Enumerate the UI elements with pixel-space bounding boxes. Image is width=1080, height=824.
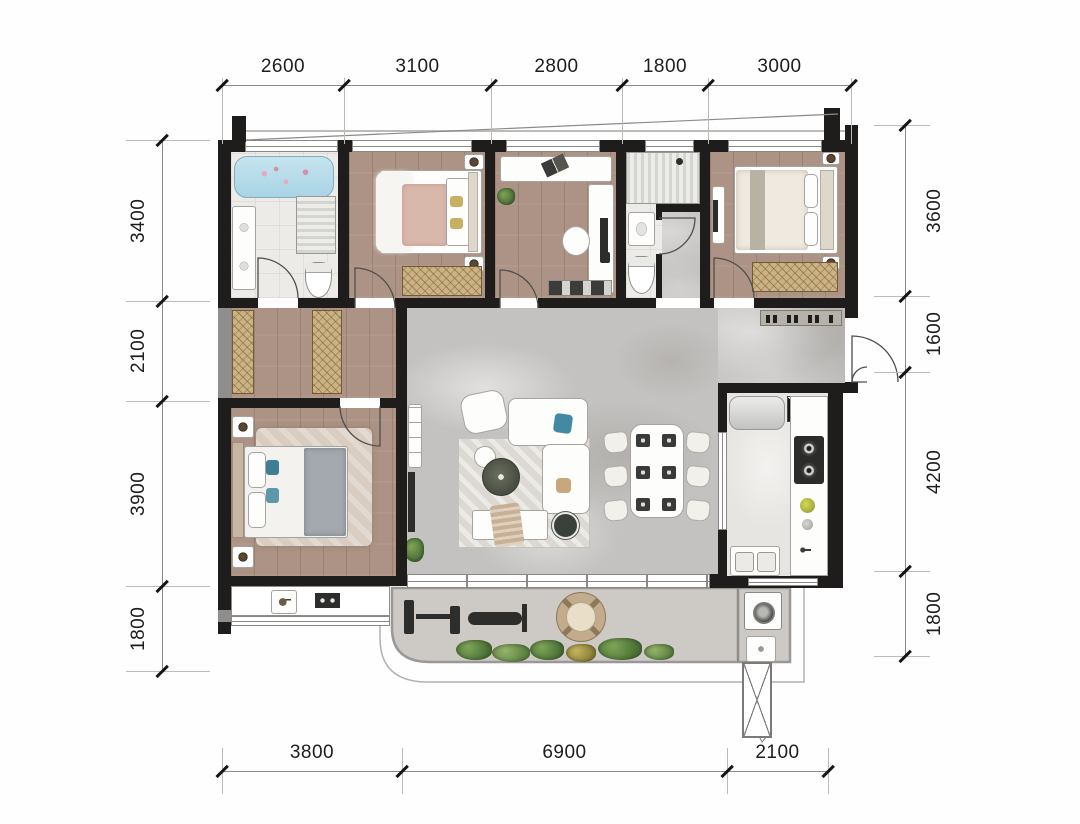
nightstand [232, 416, 254, 438]
wall-segment [845, 125, 858, 318]
bookshelf [408, 404, 422, 468]
tan-cushion [556, 478, 571, 493]
extension-line [491, 78, 492, 144]
toilet-tank [629, 257, 654, 267]
duvet-pink [402, 184, 448, 246]
dimension-label: 1800 [922, 571, 948, 656]
wall-segment [718, 530, 727, 576]
bowl [802, 519, 813, 530]
kitchen-glass-door [718, 432, 727, 530]
window [352, 140, 472, 152]
pillow [804, 174, 818, 208]
bed-runner [750, 170, 765, 250]
dimension-label: 1600 [922, 296, 948, 372]
refrigerator [729, 396, 785, 430]
bed-sheet [446, 178, 470, 246]
wall-segment [338, 152, 349, 298]
gold-pillow [450, 196, 463, 207]
wall-segment [218, 622, 231, 634]
wall-segment [700, 152, 710, 298]
faucet [798, 544, 814, 556]
wall-segment [754, 298, 845, 308]
pillow [248, 492, 266, 528]
wall-segment [218, 140, 231, 298]
place-setting [636, 466, 650, 479]
bench-rack [522, 604, 527, 632]
wall-segment [231, 398, 340, 408]
shower-area [296, 196, 336, 254]
planter-shrub [492, 644, 530, 662]
place-setting [662, 434, 676, 447]
wall-segment [656, 204, 704, 212]
wall-segment [616, 152, 626, 298]
desk-chair [562, 226, 590, 256]
dining-chair [685, 465, 711, 488]
gold-pillow [450, 218, 463, 229]
headboard [232, 442, 244, 538]
wardrobe [402, 266, 482, 296]
window [728, 140, 822, 152]
planter-shrub [566, 644, 596, 662]
wall-segment [218, 298, 231, 398]
door-arc-entry-main [852, 336, 898, 382]
wall-segment [298, 298, 355, 308]
dumbbell-rack [404, 600, 414, 634]
dimension-label: 2100 [727, 742, 828, 764]
extension-line [344, 78, 345, 144]
nightstand [232, 546, 254, 568]
sink-cabinet [730, 546, 780, 576]
window [245, 140, 338, 152]
nightstand [822, 152, 840, 165]
blanket [489, 502, 525, 548]
door-arc-entry-leaf [852, 367, 867, 382]
wardrobe [312, 310, 342, 394]
exercise-bench [468, 612, 522, 625]
bathroom-2-lobby [662, 204, 700, 298]
extension-line [222, 78, 223, 144]
dimension-line-right [905, 125, 906, 656]
wall-segment [700, 298, 714, 308]
gas-stove [794, 436, 824, 484]
dimension-label: 6900 [402, 742, 727, 764]
wall-segment [656, 212, 662, 220]
tv-screen [713, 200, 718, 232]
weight-plates [450, 606, 460, 634]
dimension-label: 3800 [222, 742, 402, 764]
extension-line [126, 671, 210, 672]
bathroom-vanity [232, 206, 256, 290]
planter-shrub [644, 644, 674, 660]
place-setting [662, 498, 676, 511]
teal-cushion [553, 413, 573, 434]
dimension-label: 1800 [622, 56, 708, 78]
shower-area [626, 152, 700, 204]
decor-tray [315, 593, 340, 608]
dimension-line-top [222, 85, 851, 86]
coffee-table [482, 458, 520, 496]
pillow [804, 212, 818, 246]
wall-segment [218, 298, 258, 308]
nightstand [464, 154, 484, 170]
teal-cushion [266, 488, 279, 503]
window [506, 140, 600, 152]
potted-plant [404, 538, 424, 562]
place-setting [636, 434, 650, 447]
toilet-tank [306, 263, 331, 273]
sink-basin [757, 552, 776, 572]
parapet-block [824, 108, 840, 140]
shower-head [676, 158, 683, 165]
washing-machine [744, 592, 782, 630]
wall-segment [218, 576, 407, 586]
wardrobe [232, 310, 254, 394]
gray-throw [304, 448, 346, 536]
headboard [468, 172, 478, 252]
wall-segment [396, 308, 407, 586]
extension-line [708, 78, 709, 144]
wall-segment [718, 393, 727, 432]
dimension-label: 3100 [344, 56, 491, 78]
washer-drum [753, 602, 775, 624]
place-setting [636, 498, 650, 511]
wall-segment [472, 140, 506, 152]
sofa [508, 398, 588, 446]
dimension-line-left [162, 140, 163, 671]
pouf [552, 512, 579, 539]
window [748, 578, 818, 586]
duvet [736, 170, 808, 250]
fruit-bowl [800, 498, 815, 513]
dimension-label: 3000 [708, 56, 851, 78]
dimension-label: 3600 [922, 125, 948, 296]
place-setting [662, 466, 676, 479]
dimension-label: 2100 [126, 301, 152, 401]
shoes [766, 315, 836, 323]
wall-segment [485, 152, 495, 298]
pipe-shaft [742, 662, 772, 738]
extension-line [622, 78, 623, 144]
teal-cushion [266, 460, 279, 475]
wardrobe [752, 262, 838, 292]
dimension-label: 3900 [126, 401, 152, 586]
balcony-sliding-door [407, 574, 710, 588]
hanging-chair-cushion [566, 602, 596, 632]
dining-chair [685, 431, 711, 454]
floor-plan: 2600 3100 2800 1800 3000 3800 6900 2100 … [0, 0, 1080, 824]
potted-plant [497, 188, 515, 205]
wall-segment [395, 298, 500, 308]
desk-item [600, 252, 610, 263]
planter-shrub [456, 640, 492, 660]
bay-window-glazing [231, 616, 390, 626]
window [645, 140, 694, 152]
wall-segment [710, 574, 718, 588]
planter-shrub [598, 638, 642, 660]
wall-segment [694, 140, 728, 152]
eave-diagonal-line [246, 114, 838, 140]
bathtub [234, 156, 334, 198]
dimension-label: 1800 [126, 586, 152, 671]
bay-window-cabinet [231, 586, 390, 616]
dimension-label: 2800 [491, 56, 622, 78]
bench-cushions [548, 280, 612, 296]
planter-shrub [530, 640, 564, 660]
wall-segment [538, 298, 656, 308]
extension-line [851, 78, 852, 144]
dimension-label: 3400 [126, 140, 152, 301]
water-heater [746, 636, 776, 662]
dining-chair [685, 499, 711, 522]
wall-segment [656, 254, 662, 298]
pillow [248, 452, 266, 488]
wall-segment [338, 140, 352, 152]
dimension-label: 4200 [922, 372, 948, 571]
dimension-line-bottom [222, 771, 828, 772]
bird-artwork [271, 590, 297, 614]
sink-basin [735, 552, 754, 572]
headboard [820, 170, 834, 250]
shoe-cabinet [760, 310, 842, 326]
tv-screen [408, 472, 415, 532]
wall-segment [718, 383, 858, 393]
parapet-block [232, 116, 246, 142]
wash-basin [628, 212, 655, 246]
wall-segment [828, 393, 843, 576]
eave-line [245, 130, 845, 132]
dimension-label: 2600 [222, 56, 344, 78]
